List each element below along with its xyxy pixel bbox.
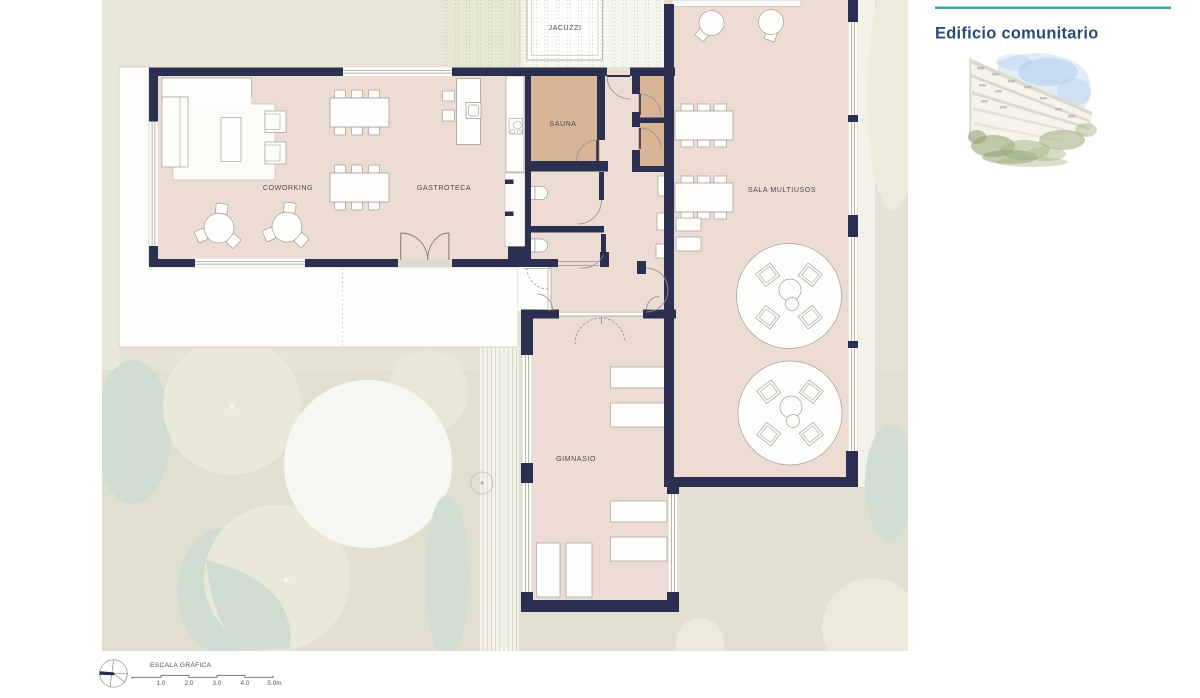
svg-text:5.0m: 5.0m (267, 680, 281, 687)
svg-text:JACUZZI: JACUZZI (548, 24, 581, 32)
svg-text:SALA MULTIUSOS: SALA MULTIUSOS (748, 186, 816, 194)
svg-text:3.0: 3.0 (213, 680, 222, 687)
svg-text:4.0: 4.0 (241, 680, 250, 687)
svg-text:GIMNASIO: GIMNASIO (556, 455, 596, 463)
svg-text:1.0: 1.0 (157, 680, 166, 687)
svg-text:2.0: 2.0 (185, 680, 194, 687)
svg-text:SAUNA: SAUNA (549, 120, 576, 128)
svg-text:GASTROTECA: GASTROTECA (417, 184, 471, 192)
svg-text:COWORKING: COWORKING (263, 184, 313, 192)
svg-text:ESCALA GRÁFICA: ESCALA GRÁFICA (150, 660, 212, 669)
svg-text:Edificio comunitario: Edificio comunitario (935, 25, 1099, 43)
